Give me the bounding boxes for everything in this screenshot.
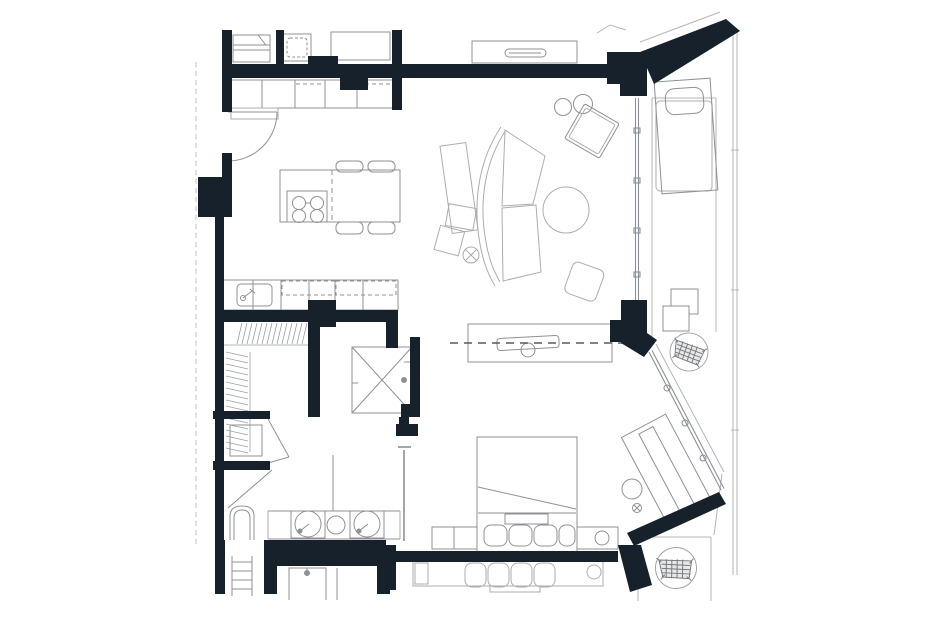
side-table-circle	[555, 99, 572, 116]
toilet	[230, 506, 254, 540]
deck-edge-diagonal	[656, 344, 724, 472]
basin-right	[350, 511, 384, 538]
wall-step-right	[386, 310, 398, 348]
wall-bump-below-top	[340, 78, 368, 90]
terrace-side-squares	[663, 289, 698, 331]
vanity-counter	[268, 511, 400, 539]
shaft-x-box	[352, 347, 412, 413]
shower-below	[289, 568, 337, 600]
wall-topright-block	[607, 52, 647, 84]
neighbor-bed-row	[413, 561, 603, 592]
towel-ladder	[232, 556, 252, 596]
desk-shelf	[639, 427, 694, 512]
wall-bottom-v2	[264, 553, 277, 594]
closet-hatch-left	[226, 352, 248, 453]
kitchen-sink	[237, 284, 272, 306]
sofa-side-table-x	[463, 247, 479, 263]
wall-appliance-divider	[276, 30, 284, 65]
burner	[293, 210, 306, 223]
wall-left-door-jamb	[222, 153, 232, 179]
floor-plan-drawing	[0, 0, 940, 627]
vessel-circle	[327, 516, 345, 534]
washer	[283, 34, 311, 61]
wall-console-block	[610, 300, 657, 357]
basin-left	[291, 511, 325, 538]
console-table	[472, 41, 577, 63]
side-table-circle	[574, 95, 593, 114]
terrace-lines	[196, 12, 739, 601]
kitchen-island	[280, 161, 400, 234]
bath-door-swing	[228, 470, 272, 508]
burner	[311, 197, 324, 210]
window-wall-diagonal	[649, 351, 724, 491]
desk-stool	[622, 479, 642, 499]
wall-bath-bottom	[264, 540, 386, 566]
stacked-appliance	[233, 35, 270, 62]
wc-door-swing	[268, 419, 289, 463]
wall-closet-right	[308, 322, 320, 417]
closet-hatch-top	[237, 323, 307, 344]
balcony-parapet	[731, 32, 739, 575]
bench-lamp-circle	[595, 531, 609, 545]
wall-bottom-v3	[377, 562, 390, 594]
wall-top	[222, 64, 612, 78]
floor-plan-page	[0, 0, 940, 627]
cooktop	[287, 191, 327, 223]
armchair	[555, 95, 620, 159]
woven-chair-top	[666, 329, 711, 374]
wall-shaft-stub-a	[401, 404, 420, 417]
wall-topright-block-ext	[620, 84, 647, 96]
wall-wc-bottom	[213, 461, 270, 470]
burner	[311, 210, 324, 223]
kitchen-upper-counter	[226, 80, 394, 119]
wall-bedroom-bottom	[386, 551, 618, 562]
dining-chairs	[336, 161, 395, 234]
bed	[477, 437, 577, 552]
ottoman	[563, 260, 605, 302]
tall-cabinet	[331, 32, 390, 60]
round-coffee-table	[543, 187, 589, 233]
window-wall-right	[634, 98, 640, 300]
curved-sectional-sofa	[434, 127, 545, 286]
lounge-chair	[654, 78, 718, 194]
wall-bottomleft	[215, 540, 225, 594]
wall-door-jamb-bedroom	[396, 424, 418, 436]
burner	[293, 197, 306, 210]
wall-topright-diagonal	[640, 19, 740, 84]
wall-closet-bottom	[213, 411, 270, 419]
wall-bump-above-top	[308, 56, 338, 65]
woven-chair-bottom	[653, 545, 698, 590]
wall-left	[215, 179, 224, 594]
floor-outlet-circle	[633, 504, 642, 513]
wall-kitchen-closet	[215, 310, 398, 322]
